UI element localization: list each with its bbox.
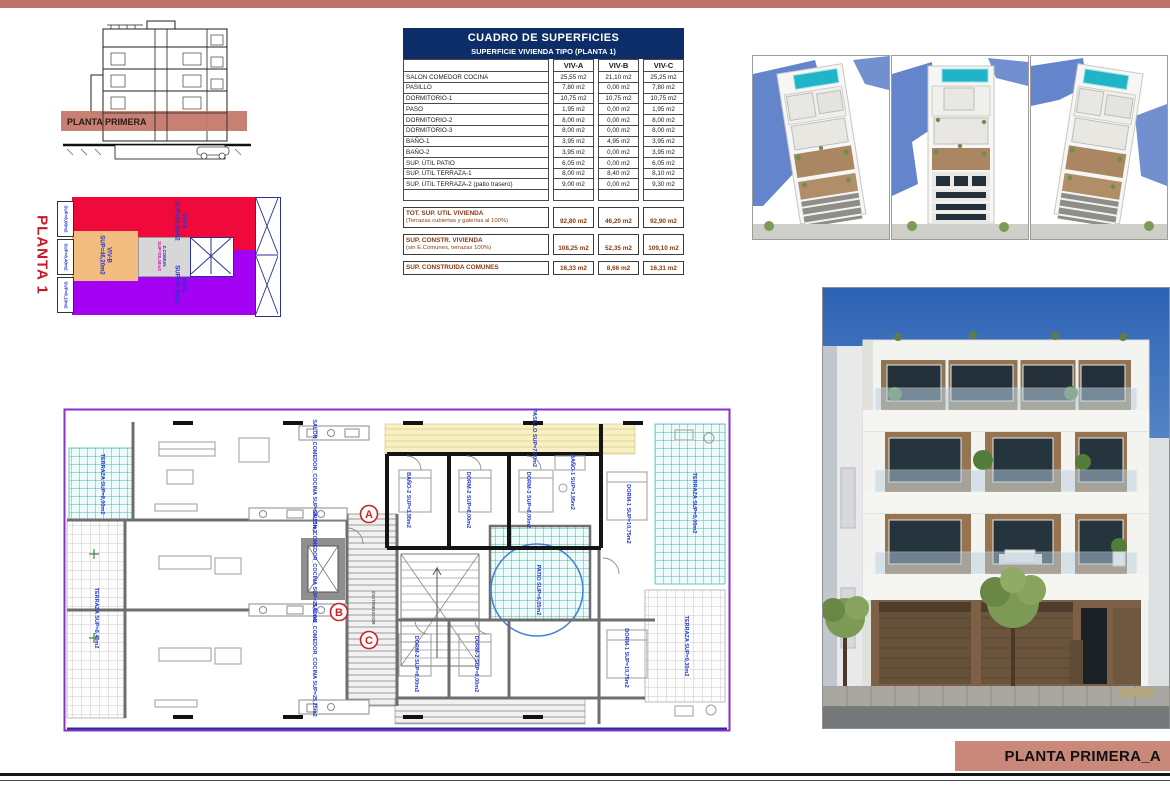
row-label: DORMITORIO-1 xyxy=(403,94,549,105)
row-label: PASO xyxy=(403,104,549,115)
stair-symbol xyxy=(190,237,234,277)
marker-b: B xyxy=(335,607,343,619)
total-label: SUP. CONSTRUIDA COMUNES xyxy=(403,261,549,275)
total-viv-c: 16,31 m2 xyxy=(643,261,684,275)
value-viv-b: 8,40 m2 xyxy=(598,169,639,180)
viv-a-label: VIV-ASUP=92,80m2 xyxy=(173,201,186,241)
total-label: SUP. CONSTR. VIVIENDA (sin E.Comunes, te… xyxy=(403,234,549,255)
terraza-box-c: SUP=8,10m2 xyxy=(57,277,74,313)
entrance-door xyxy=(1081,608,1107,684)
value-viv-a: 6,05 m2 xyxy=(553,158,594,169)
svg-text:TERRAZA SUP=8,40m2: TERRAZA SUP=8,40m2 xyxy=(93,588,99,649)
top-accent-bar xyxy=(0,0,1170,8)
row-label: BAÑO-2 xyxy=(403,147,549,158)
terraza-box-b: SUP=8,40m2 xyxy=(57,239,74,275)
aerial-render-3 xyxy=(1030,55,1168,240)
value-viv-a: 8,00 m2 xyxy=(553,126,594,137)
table-grid: VIV-A VIV-B VIV-C SALON COMEDOR COCINA 2… xyxy=(403,59,684,201)
aerial-render-1 xyxy=(752,55,890,240)
value-viv-b: 0,00 m2 xyxy=(598,179,639,190)
total-row: TOT. SUP. UTIL VIVIENDA (Terrazas cubier… xyxy=(403,207,684,228)
value-viv-b: 21,10 m2 xyxy=(598,72,639,83)
value-viv-a: 8,00 m2 xyxy=(553,169,594,180)
total-viv-b: 46,20 m2 xyxy=(598,207,639,228)
value-viv-a: 3,95 m2 xyxy=(553,147,594,158)
value-viv-b: 0,00 m2 xyxy=(598,126,639,137)
value-viv-b: 0,00 m2 xyxy=(598,115,639,126)
surfaces-table: CUADRO DE SUPERFICIES SUPERFICIE VIVIEND… xyxy=(403,28,684,275)
value-viv-b: 0,00 m2 xyxy=(598,147,639,158)
total-viv-b: 8,66 m2 xyxy=(598,261,639,275)
value-viv-c: 3,95 m2 xyxy=(643,137,684,148)
value-viv-c: 6,05 m2 xyxy=(643,158,684,169)
sheet-title: PLANTA PRIMERA_A xyxy=(1005,748,1161,765)
svg-text:DORM-3 SUP=8,00m2: DORM-3 SUP=8,00m2 xyxy=(525,472,531,528)
col-viv-a: VIV-A xyxy=(553,59,594,72)
sheet-title-badge: PLANTA PRIMERA_A xyxy=(955,741,1170,771)
corridor-yellow xyxy=(385,424,635,454)
value-viv-c: 3,95 m2 xyxy=(643,147,684,158)
total-viv-b: 52,35 m2 xyxy=(598,234,639,255)
svg-text:TERRAZA SUP=9,30m2: TERRAZA SUP=9,30m2 xyxy=(683,616,689,677)
section-band-label: PLANTA PRIMERA xyxy=(67,117,147,127)
svg-text:BAÑO-2 SUP=3,95m2: BAÑO-2 SUP=3,95m2 xyxy=(405,472,412,528)
row-label: DORMITORIO-2 xyxy=(403,115,549,126)
row-label: PASILLO xyxy=(403,83,549,94)
marker-c: C xyxy=(365,635,373,647)
value-viv-a: 1,95 m2 xyxy=(553,104,594,115)
building-section-drawing: PLANTA PRIMERA xyxy=(55,15,260,167)
terraza-a-label: SUP=8,00m2 xyxy=(63,205,68,232)
row-label: SUP. ÚTIL TERRAZA-1 xyxy=(403,169,549,180)
value-viv-b: 10,75 m2 xyxy=(598,94,639,105)
plan-sheet: PLANTA PRIMERA PLANTA 1 SUP=8,00m2 SU xyxy=(0,0,1170,785)
svg-text:BAÑO-1 SUP=3,95m2: BAÑO-1 SUP=3,95m2 xyxy=(569,454,576,510)
total-viv-a: 16,33 m2 xyxy=(553,261,594,275)
value-viv-c: 25,25 m2 xyxy=(643,72,684,83)
value-viv-c: 10,75 m2 xyxy=(643,94,684,105)
svg-text:DORM-3 SUP=8,00m2: DORM-3 SUP=8,00m2 xyxy=(473,636,479,692)
total-label: TOT. SUP. UTIL VIVIENDA (Terrazas cubier… xyxy=(403,207,549,228)
svg-text:DORM-1 SUP=10,75m2: DORM-1 SUP=10,75m2 xyxy=(623,628,629,687)
value-viv-c: 8,10 m2 xyxy=(643,169,684,180)
terraza-box-a: SUP=8,00m2 xyxy=(57,201,74,237)
terraza-b-label: SUP=8,40m2 xyxy=(63,243,68,270)
color-key-plan: PLANTA 1 SUP=8,00m2 SUP=8,40m2 SUP=8,10m… xyxy=(28,193,284,319)
value-viv-b: 0,00 m2 xyxy=(598,83,639,94)
svg-text:DISTRIBUIDOR: DISTRIBUIDOR xyxy=(371,591,376,625)
section-svg: PLANTA PRIMERA xyxy=(55,15,260,167)
stairs xyxy=(401,554,479,666)
svg-text:DORM-2 SUP=8,00m2: DORM-2 SUP=8,00m2 xyxy=(465,472,471,528)
value-viv-c: 7,80 m2 xyxy=(643,83,684,94)
svg-text:PASILLO SUP=7,80m2: PASILLO SUP=7,80m2 xyxy=(531,409,537,467)
table-header: CUADRO DE SUPERFICIES SUPERFICIE VIVIEND… xyxy=(403,28,684,59)
col-viv-b: VIV-B xyxy=(598,59,639,72)
terraza-c-label: SUP=8,10m2 xyxy=(63,281,68,308)
value-viv-a: 9,00 m2 xyxy=(553,179,594,190)
total-viv-a: 108,25 m2 xyxy=(553,234,594,255)
corridor-bottom xyxy=(395,698,585,724)
elevator xyxy=(301,538,345,600)
row-label: BAÑO-1 xyxy=(403,137,549,148)
marker-a: A xyxy=(365,509,373,521)
zcomun-label: Z.COMUNSUP=28,48m2 xyxy=(156,241,166,271)
col-viv-c: VIV-C xyxy=(643,59,684,72)
row-label: SUP. ÚTIL TERRAZA-2 (patio trasero) xyxy=(403,179,549,190)
total-row: SUP. CONSTR. VIVIENDA (sin E.Comunes, te… xyxy=(403,234,684,255)
floor-plan: A B C SALON_COMEDOR_COCINA SUP=25,55m2 S… xyxy=(63,408,731,733)
total-viv-c: 109,10 m2 xyxy=(643,234,684,255)
svg-text:TERRAZA SUP=8,00m2: TERRAZA SUP=8,00m2 xyxy=(99,454,105,515)
svg-text:DORM-1 SUP=10,75m2: DORM-1 SUP=10,75m2 xyxy=(625,484,631,543)
row-label: DORMITORIO-3 xyxy=(403,126,549,137)
bottom-rule-thick xyxy=(0,773,1170,776)
value-viv-c: 1,95 m2 xyxy=(643,104,684,115)
svg-text:DORM-2 SUP=8,00m2: DORM-2 SUP=8,00m2 xyxy=(413,636,419,692)
svg-text:PATIO SUP=6,05m2: PATIO SUP=6,05m2 xyxy=(535,565,541,616)
value-viv-c: 8,00 m2 xyxy=(643,126,684,137)
viv-c-label: VIV-CSUP=92,90m2 xyxy=(173,265,186,305)
value-viv-a: 10,75 m2 xyxy=(553,94,594,105)
bottom-rule-thin xyxy=(0,780,1170,781)
terrace-right xyxy=(655,424,725,584)
viv-b-label: VIV-BSUP=46,20m2 xyxy=(98,235,111,275)
value-viv-b: 0,00 m2 xyxy=(598,104,639,115)
value-viv-a: 7,80 m2 xyxy=(553,83,594,94)
total-row: SUP. CONSTRUIDA COMUNES 16,33 m2 8,66 m2… xyxy=(403,261,684,275)
aerial-render-2 xyxy=(891,55,1029,240)
row-label: SUP. ÚTIL PATIO xyxy=(403,158,549,169)
right-stair-column xyxy=(255,197,281,317)
value-viv-b: 0,00 m2 xyxy=(598,158,639,169)
value-viv-a: 8,00 m2 xyxy=(553,115,594,126)
value-viv-b: 4,95 m2 xyxy=(598,137,639,148)
total-viv-a: 92,80 m2 xyxy=(553,207,594,228)
value-viv-c: 8,00 m2 xyxy=(643,115,684,126)
corner-cell xyxy=(403,59,549,72)
row-label: SALON COMEDOR COCINA xyxy=(403,72,549,83)
table-subtitle: SUPERFICIE VIVIENDA TIPO (PLANTA 1) xyxy=(405,47,682,56)
value-viv-c: 9,30 m2 xyxy=(643,179,684,190)
color-plan-title: PLANTA 1 xyxy=(34,215,51,295)
facade-render xyxy=(822,287,1170,729)
total-viv-c: 92,90 m2 xyxy=(643,207,684,228)
svg-text:TERRAZA SUP=9,00m2: TERRAZA SUP=9,00m2 xyxy=(691,473,697,534)
value-viv-a: 3,95 m2 xyxy=(553,137,594,148)
value-viv-a: 25,55 m2 xyxy=(553,72,594,83)
totals-section: TOT. SUP. UTIL VIVIENDA (Terrazas cubier… xyxy=(403,207,684,276)
svg-text:SALON_COMEDOR_COCINA SUP=25,25: SALON_COMEDOR_COCINA SUP=25,25m2 xyxy=(311,603,317,716)
table-title: CUADRO DE SUPERFICIES xyxy=(405,32,682,44)
